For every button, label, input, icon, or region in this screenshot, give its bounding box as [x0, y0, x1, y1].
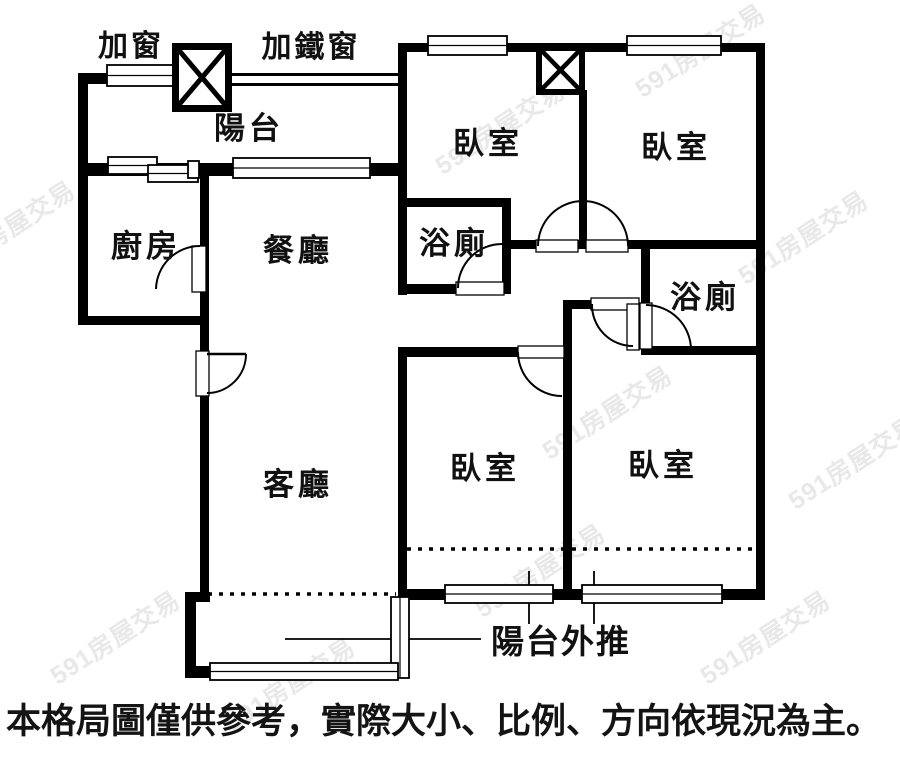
room-label-bedroom-top-right: 臥室	[641, 130, 711, 165]
wall-dining-right-upper	[398, 43, 407, 295]
watermark-text: 591房屋交易	[733, 185, 874, 290]
room-label-living: 客廳	[263, 467, 333, 502]
wall-between-top-bedrooms	[579, 90, 587, 249]
wall-bath-lower-left	[641, 244, 650, 307]
bedroom-tr-door-opening	[586, 240, 628, 252]
balcony-pushed-out-label: 陽台外推	[491, 623, 631, 660]
hall-door-leaf	[627, 304, 639, 350]
window	[627, 36, 721, 55]
bedroom-tl-door-opening	[536, 240, 578, 252]
disclaimer-text: 本格局圖僅供參考，實際大小、比例、方向依現況為主。	[6, 701, 881, 741]
wall-bath-upper-top	[400, 198, 510, 207]
wall-dining-right-lower	[398, 347, 407, 600]
wall-between-bottom-bedrooms	[563, 300, 572, 600]
x-window-icon	[176, 47, 229, 109]
entry-door-opening	[196, 351, 209, 396]
bath-lower-door-leaf	[640, 303, 652, 349]
window	[210, 663, 398, 680]
room-label-bedroom-top-left: 臥室	[453, 126, 523, 161]
wall-kitchen-bottom	[78, 316, 209, 325]
window	[107, 65, 173, 86]
floorplan-drawing: 591房屋交易 591房屋交易 591房屋交易 591房屋交易 591房屋交易 …	[0, 0, 900, 776]
watermark-text: 591房屋交易	[0, 175, 81, 280]
watermark-text: 591房屋交易	[45, 585, 186, 690]
entry-door-arc	[207, 354, 246, 393]
bedroom-bl-door-opening	[518, 346, 564, 358]
watermark-text: 591房屋交易	[783, 410, 900, 515]
add-iron-window-label: 加鐵窗	[262, 30, 361, 64]
bath-upper-door-opening	[456, 282, 504, 295]
room-label-balcony: 陽台	[214, 111, 284, 146]
window	[445, 585, 553, 603]
room-label-bedroom-bottom-right: 臥室	[628, 448, 698, 483]
room-label-kitchen: 廚房	[111, 229, 181, 264]
wall-bedroom-bl-top	[398, 347, 523, 357]
door-openings	[192, 240, 652, 396]
iron-window-bottom-line	[229, 83, 400, 86]
window	[582, 585, 722, 603]
window-small	[188, 161, 199, 178]
room-label-bathroom-upper: 浴廁	[419, 226, 489, 261]
room-label-dining: 餐廳	[263, 233, 333, 268]
window	[428, 36, 507, 55]
add-window-label: 加窗	[98, 29, 164, 63]
watermark-text: 591房屋交易	[470, 518, 611, 623]
room-label-bathroom-lower: 浴廁	[670, 280, 740, 315]
iron-window-top-line	[229, 73, 400, 76]
floorplan-canvas: 591房屋交易 591房屋交易 591房屋交易 591房屋交易 591房屋交易 …	[0, 0, 900, 776]
kitchen-door-opening	[192, 246, 206, 292]
wall-bath-lower-bottom	[641, 346, 765, 355]
iron-window-lines	[229, 73, 400, 86]
x-window-icon	[539, 48, 582, 92]
wall-left-exterior	[78, 73, 88, 322]
window	[233, 158, 370, 178]
wall-right-exterior	[756, 43, 765, 600]
room-label-bedroom-bottom-left: 臥室	[450, 451, 520, 486]
wall-pushed-balcony-left	[185, 592, 196, 678]
